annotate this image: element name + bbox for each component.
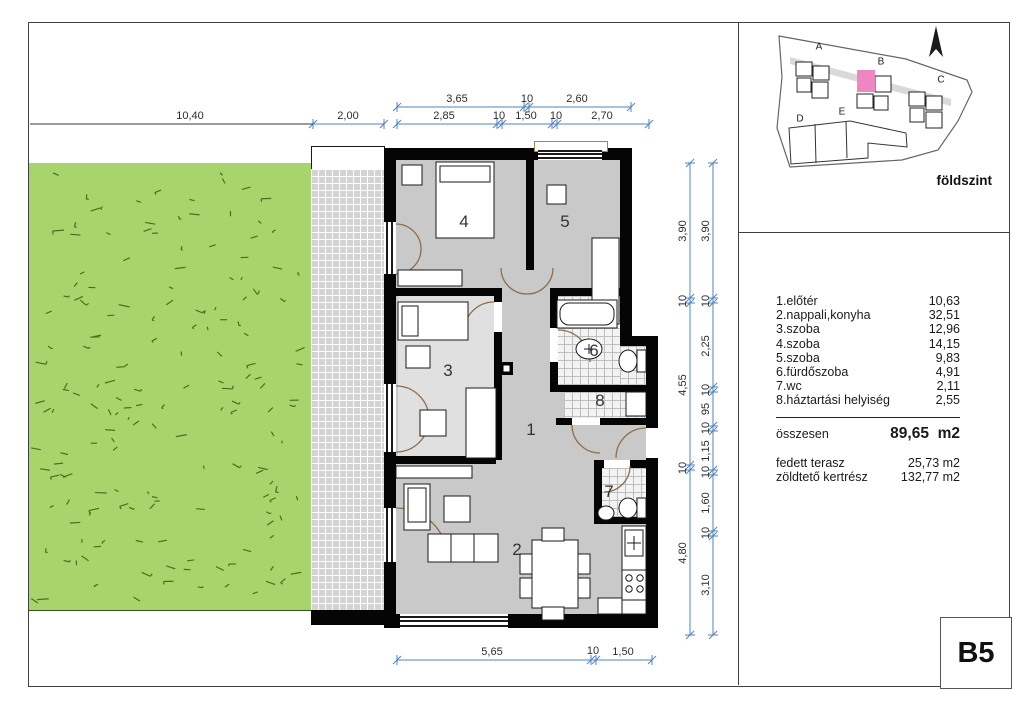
legend-extras: fedett terasz25,73 m2 zöldtető kertrész1… (776, 456, 960, 484)
dim-left-1: 2,00 (337, 110, 358, 122)
entrance-door-opening (646, 428, 658, 458)
legend-extra-row: fedett terasz25,73 m2 (776, 456, 960, 470)
legend-separator (776, 417, 960, 418)
terrace-planter (311, 146, 385, 170)
legend-value: 4,91 (936, 365, 960, 379)
wall-east-lower (646, 336, 658, 618)
terrace-tiles (311, 169, 385, 612)
garden-area (29, 163, 311, 611)
legend-value: 9,83 (936, 351, 960, 365)
legend-value: 25,73 m2 (908, 456, 960, 470)
dim-left-0: 10,40 (176, 110, 204, 122)
legend-label: 4.szoba (776, 337, 820, 351)
legend-row: 4.szoba14,15 (776, 337, 960, 351)
dim-top2-3: 10 (550, 110, 562, 122)
legend-value: 12,96 (929, 322, 960, 336)
legend-row: 7.wc2,11 (776, 379, 960, 393)
dim-top2-2: 1,50 (515, 110, 536, 122)
dim-ro-6: 1,15 (700, 440, 712, 461)
dim-ro-3: 10 (700, 384, 712, 396)
room-label-5: 5 (560, 212, 569, 232)
dim-ro-8: 1,60 (700, 492, 712, 513)
room-label-4: 4 (459, 212, 468, 232)
unit-id-label: B5 (957, 637, 994, 670)
dim-ro-0: 3,90 (700, 220, 712, 241)
room-label-6: 6 (589, 341, 598, 361)
legend-total-row: összesen 89,65 m2 (776, 425, 960, 443)
wall-room5-bath (556, 288, 620, 296)
legend-value: 32,51 (929, 308, 960, 322)
door-room3-opening (494, 302, 502, 332)
dim-bottom-1: 10 (587, 645, 599, 657)
dim-ro-5: 10 (700, 422, 712, 434)
legend-label: 2.nappali,konyha (776, 308, 871, 322)
dim-ri-3: 10 (677, 462, 689, 474)
door-wc-opening (604, 460, 630, 468)
wall-east-upper (620, 148, 632, 346)
dim-ri-4: 4,80 (677, 542, 689, 563)
dim-ro-7: 10 (700, 466, 712, 478)
floor-bath-nook (620, 346, 646, 384)
site-building-d: D (796, 114, 803, 125)
dim-ro-1: 10 (700, 295, 712, 307)
wall-room8-hall (556, 418, 648, 425)
legend-label: 1.előtér (776, 294, 818, 308)
floor-bathroom (556, 296, 620, 386)
door-bath-opening (550, 328, 558, 362)
terrace-south-wall (311, 610, 387, 625)
dim-ro-2: 2,25 (700, 335, 712, 356)
dim-ri-0: 3,90 (677, 220, 689, 241)
unit-id-box: B5 (940, 617, 1012, 689)
legend-row: 2.nappali,konyha32,51 (776, 308, 960, 322)
legend-label: fedett terasz (776, 456, 845, 470)
legend-row: 5.szoba9,83 (776, 351, 960, 365)
dim-ri-2: 4,55 (677, 374, 689, 395)
dim-ro-10: 3,10 (700, 574, 712, 595)
legend-row: 3.szoba12,96 (776, 322, 960, 336)
door-room8-opening (572, 418, 600, 425)
dim-top1-2: 2,60 (566, 93, 587, 105)
dim-ro-4: 95 (700, 403, 712, 415)
legend-label: 8.háztartási helyiség (776, 393, 890, 407)
wall-room3-room2 (396, 456, 496, 464)
wall-wc-left (594, 460, 602, 524)
legend-label: 7.wc (776, 379, 802, 393)
dim-ro-9: 10 (700, 527, 712, 539)
panel-divider-vertical (738, 22, 739, 685)
panel-divider-horizontal (739, 232, 1009, 233)
legend-row: 1.előtér10,63 (776, 294, 960, 308)
legend-value: 132,77 m2 (901, 470, 960, 484)
wall-room4-room3 (396, 288, 500, 296)
room-label-2: 2 (512, 540, 521, 560)
floor-level-label: földszint (738, 173, 992, 188)
legend-value: 10,63 (929, 294, 960, 308)
area-legend: 1.előtér10,63 2.nappali,konyha32,51 3.sz… (776, 294, 960, 484)
dim-top1-1: 10 (521, 93, 533, 105)
wall-wc-bottom (594, 517, 658, 524)
floor-room8 (564, 392, 648, 418)
dim-ri-1: 10 (677, 295, 689, 307)
dim-top2-0: 2,85 (433, 110, 454, 122)
legend-label: 3.szoba (776, 322, 820, 336)
room-label-8: 8 (595, 391, 604, 411)
site-building-e: E (839, 107, 846, 118)
legend-row: 8.háztartási helyiség2,55 (776, 393, 960, 407)
legend-row: 6.fürdőszoba4,91 (776, 365, 960, 379)
site-building-b: B (878, 57, 885, 68)
legend-total-value: 89,65 m2 (890, 425, 960, 443)
legend-value: 14,15 (929, 337, 960, 351)
dim-top2-4: 2,70 (591, 110, 612, 122)
dim-top1-0: 3,65 (446, 93, 467, 105)
legend-total-label: összesen (776, 427, 829, 441)
legend-value: 2,11 (937, 379, 960, 393)
room-label-1: 1 (526, 420, 535, 440)
legend-value: 2,55 (936, 393, 960, 407)
dim-bottom-0: 5,65 (481, 646, 502, 658)
legend-label: zöldtető kertrész (776, 470, 868, 484)
dim-bottom-2: 1,50 (612, 646, 633, 658)
wall-room4-room5 (526, 160, 534, 270)
legend-label: 6.fürdőszoba (776, 365, 848, 379)
site-building-c: C (937, 75, 944, 86)
legend-extra-row: zöldtető kertrész132,77 m2 (776, 470, 960, 484)
legend-label: 5.szoba (776, 351, 820, 365)
site-building-a: A (816, 42, 823, 53)
room-label-7: 7 (604, 482, 613, 502)
floor-plan-sheet: { "floor_plan": { "room_labels": ["1","2… (0, 0, 1024, 703)
dim-top2-1: 10 (493, 110, 505, 122)
room-label-3: 3 (443, 361, 452, 381)
